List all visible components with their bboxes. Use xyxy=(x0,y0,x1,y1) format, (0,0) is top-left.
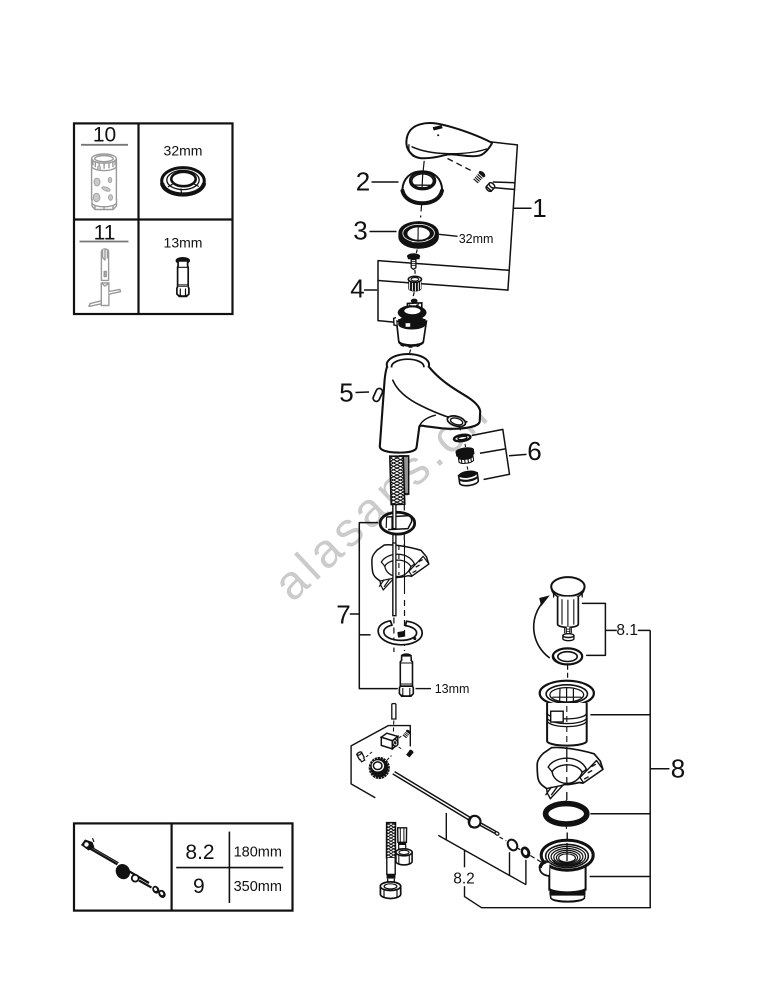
svg-text:8.2: 8.2 xyxy=(453,871,475,888)
svg-text:2: 2 xyxy=(356,167,370,197)
svg-text:13mm: 13mm xyxy=(435,682,470,696)
svg-text:9: 9 xyxy=(193,875,205,898)
svg-text:4: 4 xyxy=(350,274,364,304)
svg-text:7: 7 xyxy=(336,600,350,630)
svg-text:10: 10 xyxy=(93,124,116,147)
svg-text:32mm: 32mm xyxy=(459,232,494,246)
svg-text:5: 5 xyxy=(339,378,353,408)
svg-text:1: 1 xyxy=(532,193,546,223)
svg-text:8.1: 8.1 xyxy=(616,622,638,639)
svg-text:13mm: 13mm xyxy=(164,235,203,251)
svg-text:3: 3 xyxy=(353,216,367,246)
svg-text:180mm: 180mm xyxy=(234,844,282,860)
svg-text:350mm: 350mm xyxy=(234,879,282,895)
svg-text:8: 8 xyxy=(671,754,685,784)
svg-text:6: 6 xyxy=(527,436,541,466)
svg-text:8.2: 8.2 xyxy=(185,841,214,864)
svg-text:32mm: 32mm xyxy=(164,143,203,159)
